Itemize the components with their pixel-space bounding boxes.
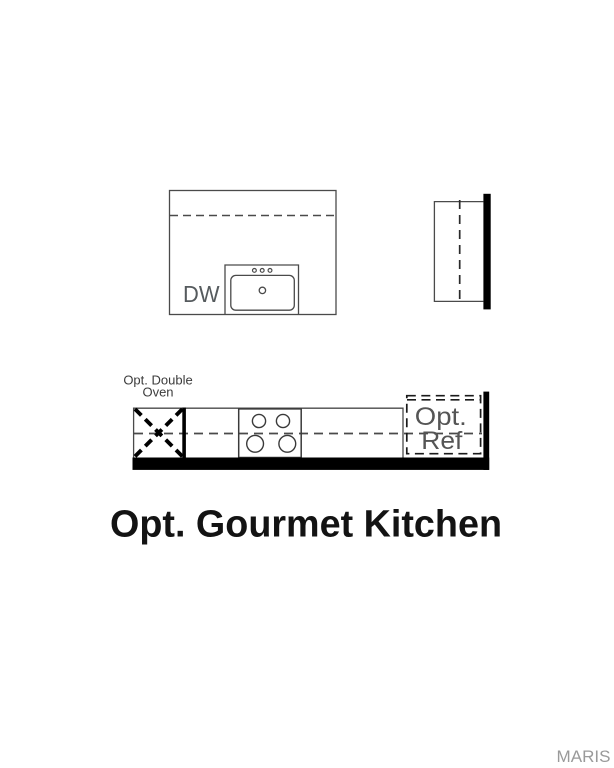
svg-text:MARIS: MARIS xyxy=(557,748,611,766)
svg-text:Opt. Gourmet Kitchen: Opt. Gourmet Kitchen xyxy=(110,504,502,546)
svg-text:Oven: Oven xyxy=(142,385,173,400)
svg-text:Ref: Ref xyxy=(421,427,462,455)
svg-text:DW: DW xyxy=(183,281,220,307)
